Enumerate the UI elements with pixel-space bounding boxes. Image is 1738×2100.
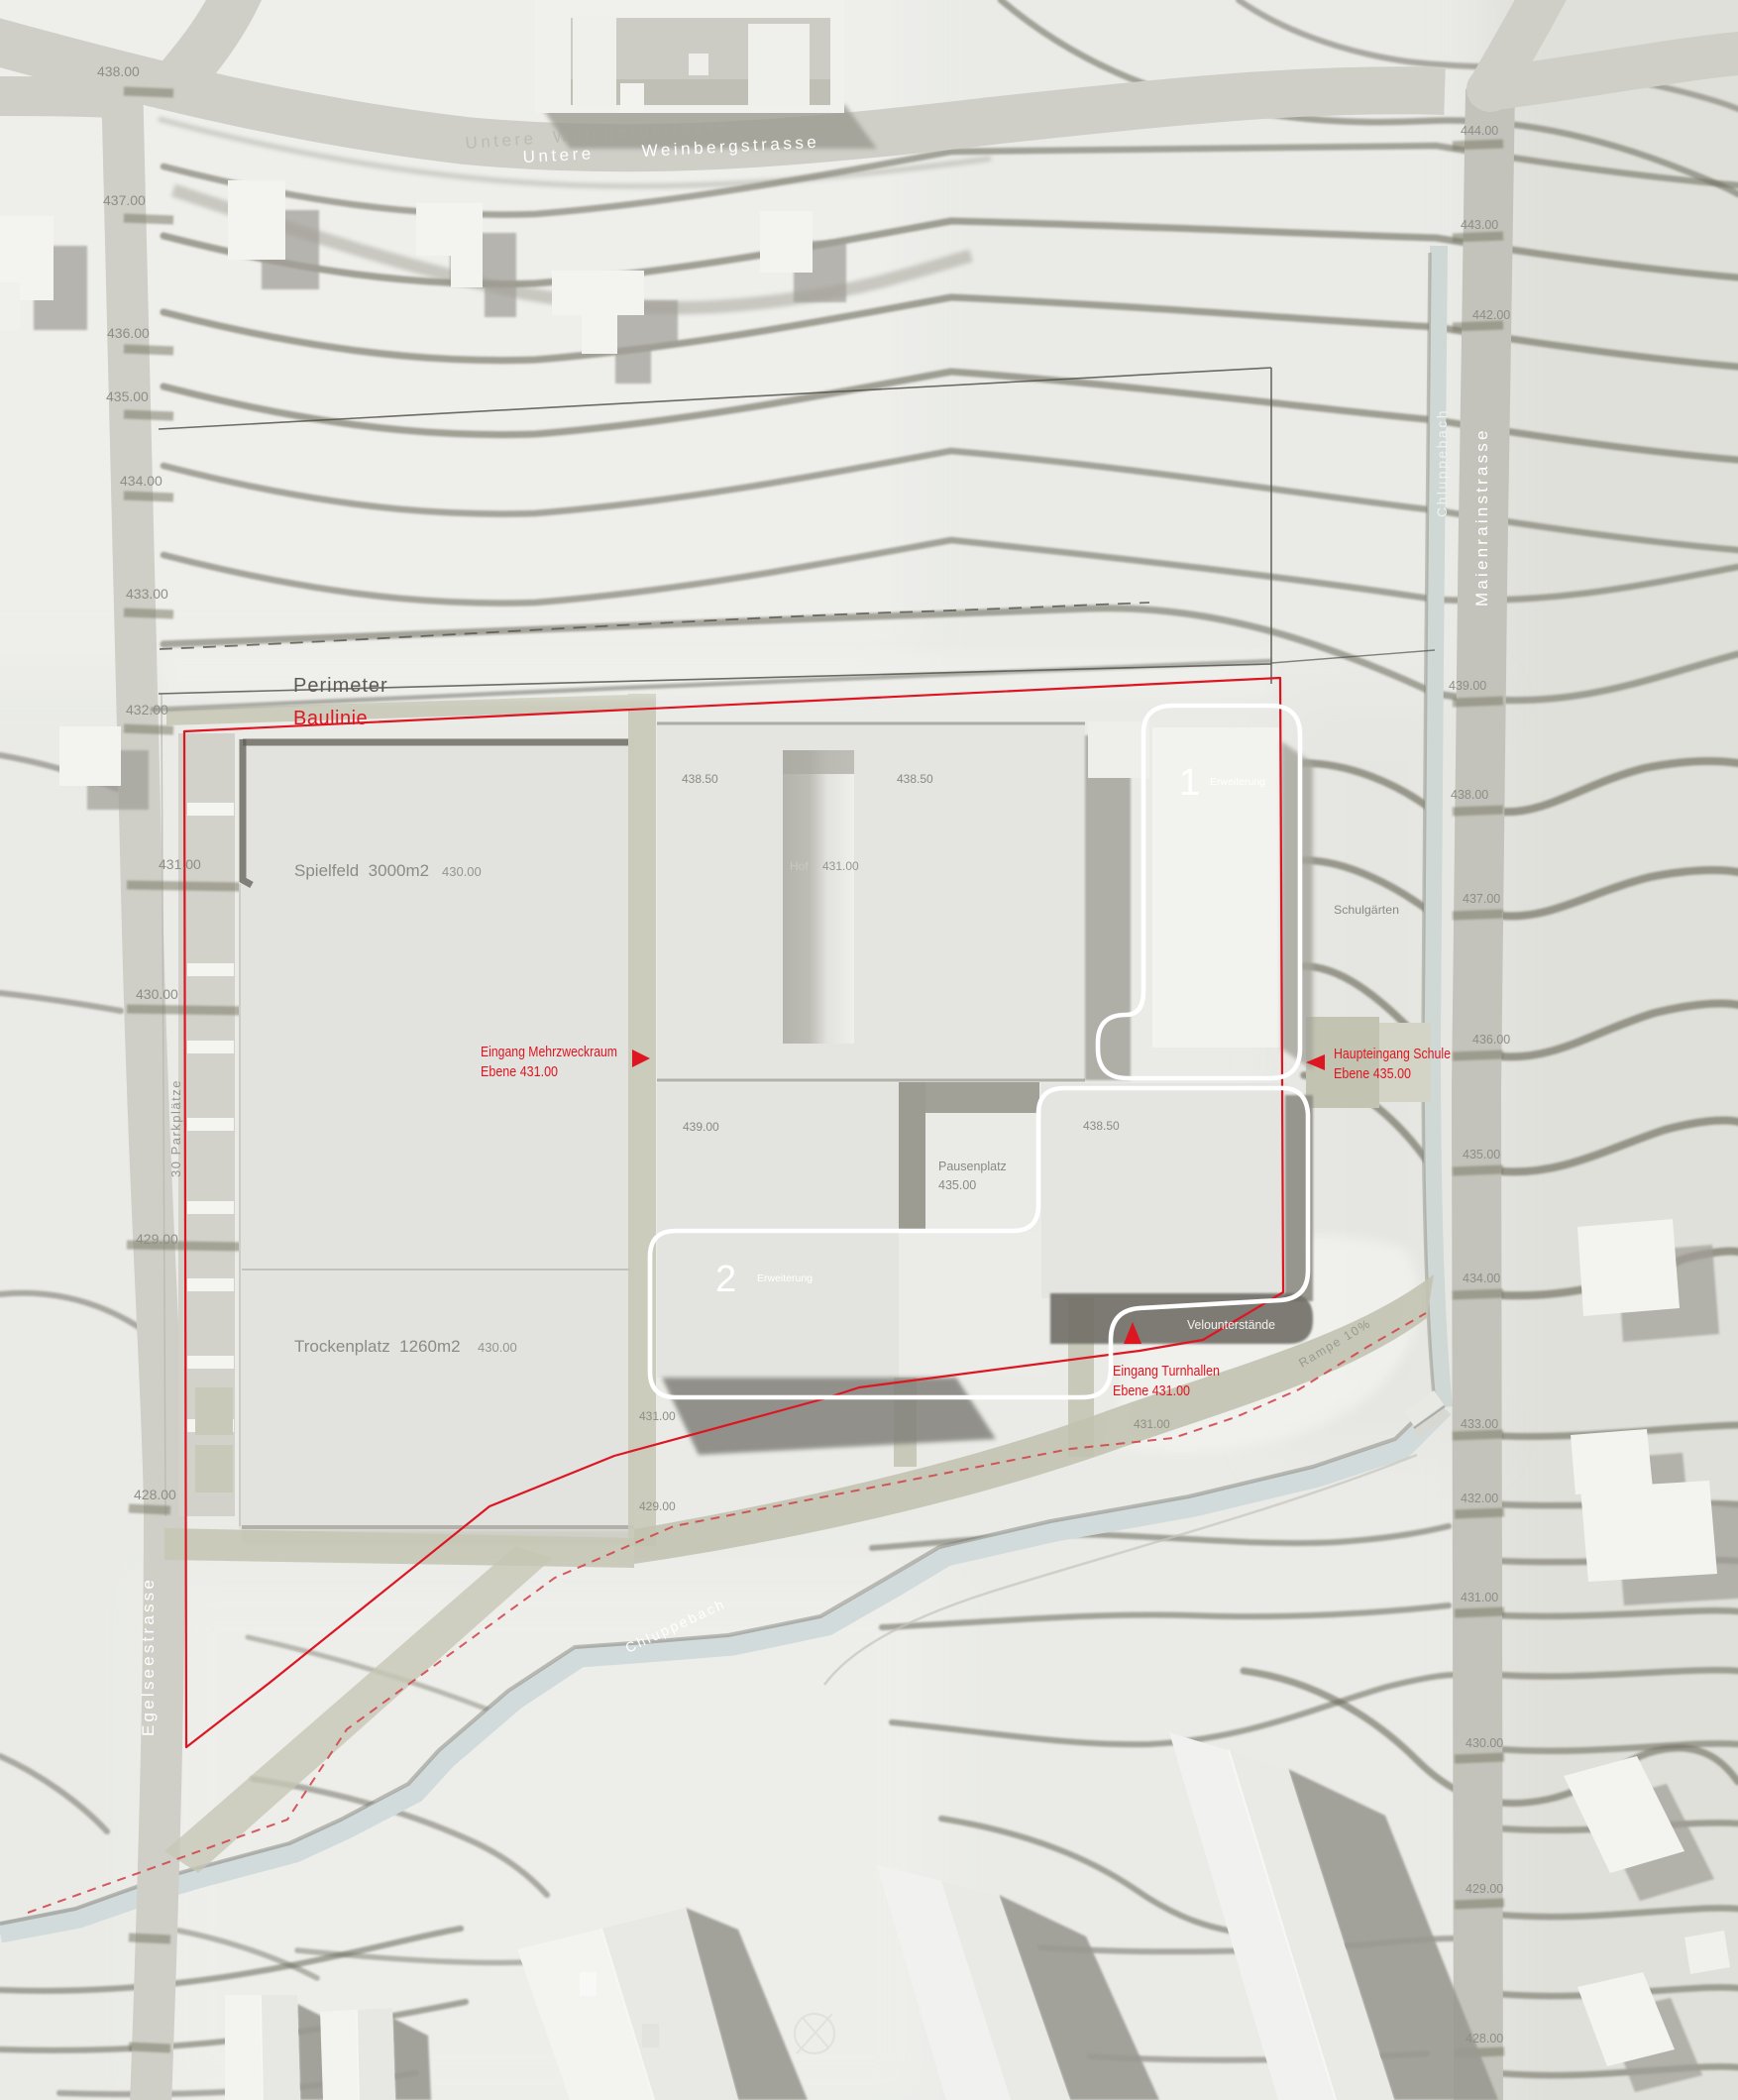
svg-text:434.00: 434.00 — [120, 473, 163, 489]
svg-text:429.00: 429.00 — [136, 1231, 178, 1247]
svg-text:Erweiterung: Erweiterung — [1210, 776, 1265, 788]
svg-text:430.00: 430.00 — [442, 864, 482, 879]
svg-text:435.00: 435.00 — [1463, 1148, 1500, 1161]
svg-text:443.00: 443.00 — [1461, 218, 1498, 232]
svg-text:437.00: 437.00 — [1463, 892, 1500, 906]
svg-text:438.50: 438.50 — [1083, 1119, 1120, 1133]
svg-text:431.00: 431.00 — [1134, 1417, 1170, 1431]
svg-text:434.00: 434.00 — [1463, 1271, 1500, 1285]
svg-text:428.00: 428.00 — [1466, 2032, 1503, 2045]
svg-text:Spielfeld 3000m2: Spielfeld 3000m2 — [294, 861, 429, 880]
svg-text:Pausenplatz: Pausenplatz — [938, 1160, 1007, 1173]
svg-text:429.00: 429.00 — [639, 1499, 676, 1513]
svg-text:30 Parkplätze: 30 Parkplätze — [168, 1079, 183, 1177]
svg-text:435.00: 435.00 — [938, 1178, 976, 1192]
svg-text:Ebene 431.00: Ebene 431.00 — [481, 1063, 558, 1080]
svg-text:Hof: Hof — [790, 859, 809, 873]
svg-text:444.00: 444.00 — [1461, 124, 1498, 138]
svg-text:430.00: 430.00 — [136, 986, 178, 1002]
svg-text:435.00: 435.00 — [106, 388, 149, 404]
svg-text:Velounterstände: Velounterstände — [1187, 1317, 1275, 1332]
svg-text:430.00: 430.00 — [478, 1340, 517, 1355]
svg-text:442.00: 442.00 — [1472, 308, 1510, 322]
svg-text:436.00: 436.00 — [1472, 1033, 1510, 1047]
svg-text:432.00: 432.00 — [126, 702, 168, 718]
svg-text:438.50: 438.50 — [897, 772, 933, 786]
svg-text:438.00: 438.00 — [1451, 788, 1488, 802]
svg-text:438.00: 438.00 — [97, 63, 140, 79]
svg-text:Ebene 435.00: Ebene 435.00 — [1334, 1065, 1411, 1082]
svg-text:432.00: 432.00 — [1461, 1492, 1498, 1505]
svg-text:2: 2 — [715, 1259, 736, 1300]
svg-text:431.00: 431.00 — [639, 1409, 676, 1423]
svg-text:431.00: 431.00 — [1461, 1591, 1498, 1604]
svg-text:Haupteingang Schule: Haupteingang Schule — [1334, 1046, 1451, 1062]
svg-text:436.00: 436.00 — [107, 325, 150, 341]
svg-text:437.00: 437.00 — [103, 192, 146, 208]
svg-text:433.00: 433.00 — [126, 586, 168, 602]
svg-text:428.00: 428.00 — [134, 1487, 176, 1502]
svg-text:Erweiterung: Erweiterung — [757, 1272, 813, 1284]
svg-text:Egelseestrasse: Egelseestrasse — [139, 1577, 158, 1736]
svg-text:Eingang Turnhallen: Eingang Turnhallen — [1113, 1363, 1220, 1380]
svg-text:433.00: 433.00 — [1461, 1417, 1498, 1431]
svg-text:429.00: 429.00 — [1466, 1882, 1503, 1896]
svg-text:Untere: Untere — [522, 144, 595, 166]
svg-text:438.50: 438.50 — [682, 772, 718, 786]
svg-text:Eingang Mehrzweckraum: Eingang Mehrzweckraum — [481, 1044, 617, 1060]
svg-text:431.00: 431.00 — [159, 856, 201, 872]
svg-text:439.00: 439.00 — [683, 1120, 719, 1134]
svg-text:Schulgärten: Schulgärten — [1334, 903, 1399, 917]
svg-text:1: 1 — [1179, 762, 1200, 804]
svg-text:439.00: 439.00 — [1449, 679, 1486, 693]
svg-text:Ebene 431.00: Ebene 431.00 — [1113, 1382, 1190, 1399]
svg-text:Chluppebach: Chluppebach — [1434, 408, 1450, 517]
svg-text:431.00: 431.00 — [822, 859, 859, 873]
svg-text:Trockenplatz 1260m2: Trockenplatz 1260m2 — [294, 1337, 461, 1356]
svg-text:Perimeter: Perimeter — [293, 675, 388, 697]
svg-text:Baulinie: Baulinie — [293, 708, 368, 729]
svg-text:Maienrainstrasse: Maienrainstrasse — [1472, 427, 1491, 607]
svg-text:430.00: 430.00 — [1466, 1736, 1503, 1750]
